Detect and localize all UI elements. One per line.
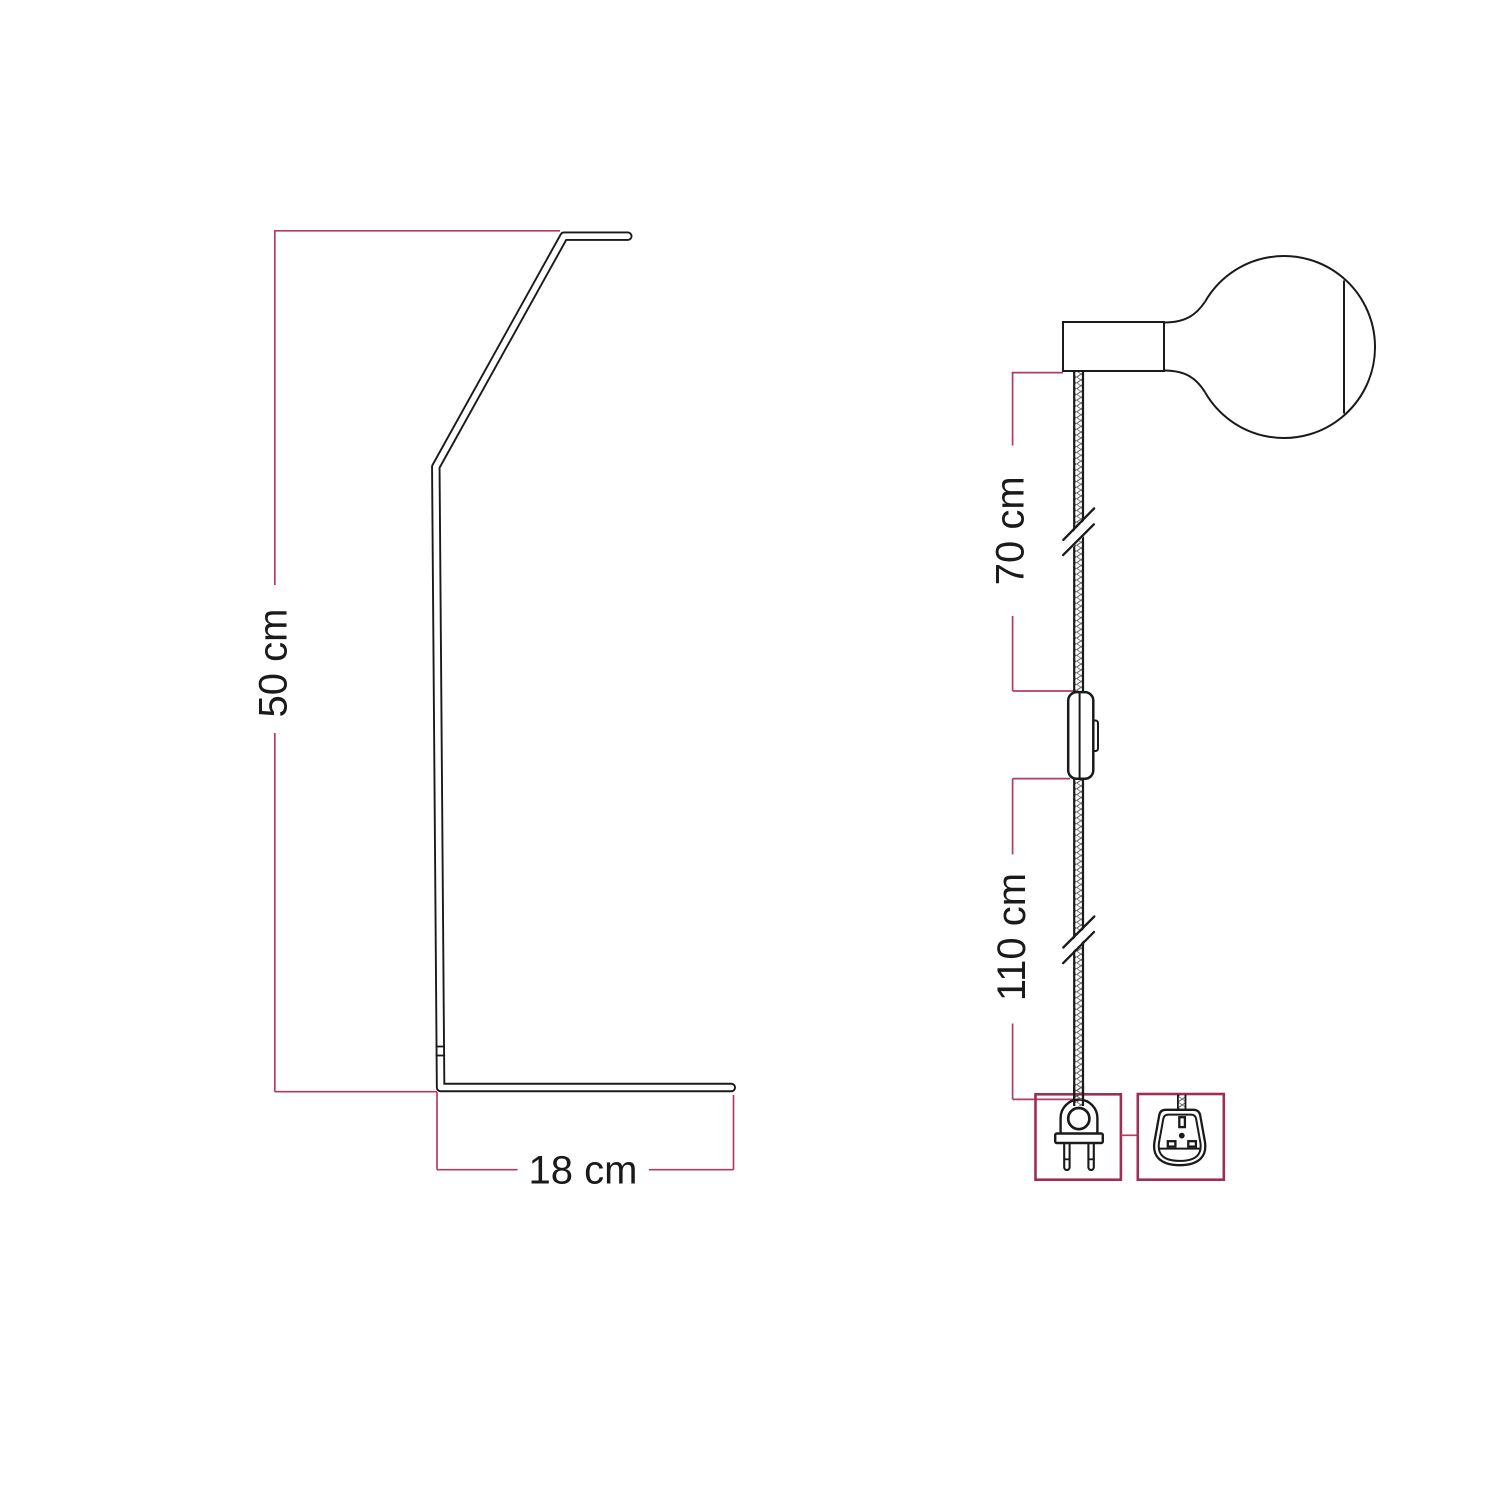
svg-text:110 cm: 110 cm [990,873,1034,1001]
svg-text:18 cm: 18 cm [529,1149,638,1193]
svg-text:70 cm: 70 cm [989,476,1033,585]
svg-text:50 cm: 50 cm [251,609,295,718]
